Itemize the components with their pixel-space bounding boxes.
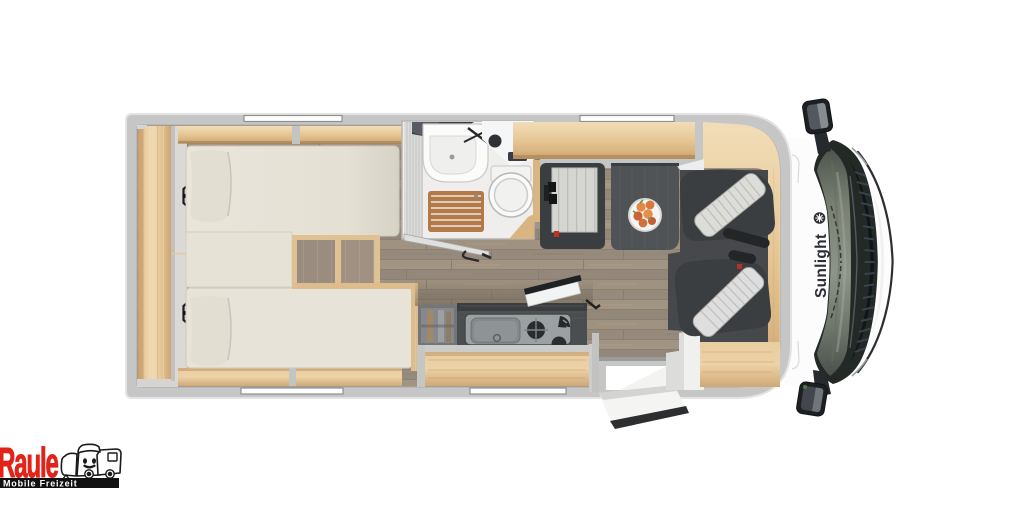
svg-text:Mobile Freizeit: Mobile Freizeit — [3, 479, 78, 489]
svg-text:Sunlight: Sunlight — [813, 234, 830, 298]
